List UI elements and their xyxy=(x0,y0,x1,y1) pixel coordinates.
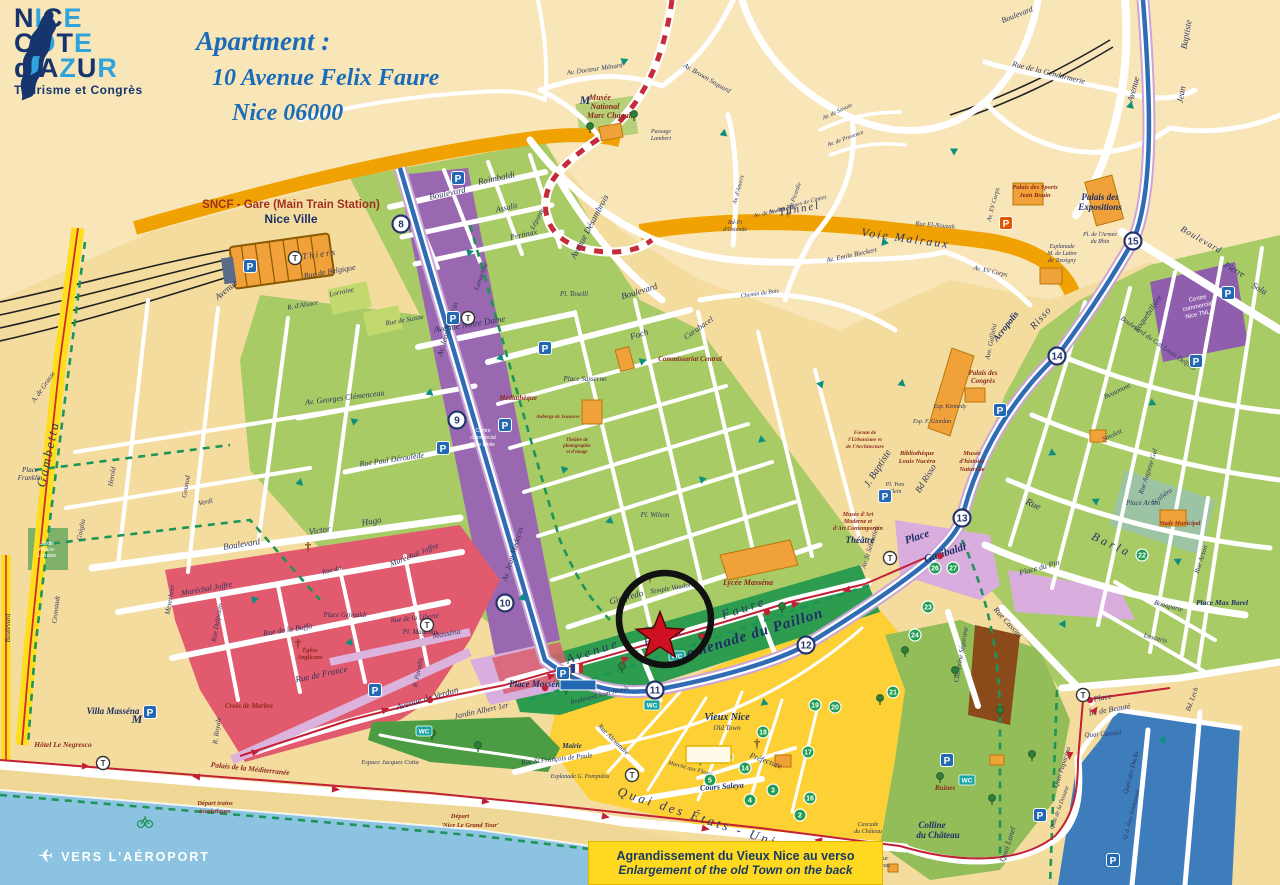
map-label: de l'Architecture xyxy=(846,444,885,450)
patrimoine-box xyxy=(686,746,731,763)
taxi-stand-icon: T xyxy=(1077,689,1090,702)
map-label: Place xyxy=(21,466,38,474)
map-label: Hôtel Le Negresco xyxy=(33,740,92,749)
parking-icon[interactable]: P xyxy=(437,442,450,456)
map-label: 'Nice Le Grand Tour' xyxy=(441,822,499,829)
parking-icon[interactable]: P xyxy=(144,706,157,720)
map-label: Palais des xyxy=(1081,192,1119,202)
parking-icon[interactable]: P xyxy=(244,260,257,274)
parking-icon[interactable]: P xyxy=(1190,355,1203,369)
map-label: Esplanade xyxy=(1048,244,1075,250)
map-label: Commissariat Central xyxy=(658,355,722,363)
poi-marker-3[interactable]: 3 xyxy=(767,784,779,796)
parking-icon[interactable]: P xyxy=(994,404,1007,418)
svg-text:14: 14 xyxy=(1051,352,1063,363)
parking-relais-icon[interactable]: P xyxy=(1000,217,1013,231)
poi-marker-17[interactable]: 17 xyxy=(802,746,814,758)
svg-text:23: 23 xyxy=(924,605,932,612)
map-label: Musée xyxy=(962,450,981,457)
map-label: Auberge de Jeunesse xyxy=(535,415,580,420)
poi-marker-21[interactable]: 21 xyxy=(887,686,899,698)
station-subtitle: Nice Ville xyxy=(186,212,396,226)
map-label: d'histoire xyxy=(959,458,984,465)
svg-text:T: T xyxy=(293,254,298,263)
tram-stop-14[interactable]: 14 xyxy=(1049,348,1066,365)
tram-stop-10[interactable]: 10 xyxy=(497,595,514,612)
svg-text:P: P xyxy=(944,756,951,767)
parking-icon[interactable]: P xyxy=(1034,809,1047,823)
museum-icon: M xyxy=(131,712,143,726)
svg-text:T: T xyxy=(101,759,106,768)
svg-text:18: 18 xyxy=(759,730,767,737)
map-label: d'Ostende xyxy=(723,227,747,233)
poi-marker-23[interactable]: 23 xyxy=(922,601,934,613)
map-label: touristiques xyxy=(199,808,231,815)
parking-icon[interactable]: P xyxy=(452,172,465,186)
svg-text:P: P xyxy=(1225,289,1232,300)
map-label: Jean Bouin xyxy=(1018,192,1051,199)
map-label: Esp. F. Giordan xyxy=(912,419,951,425)
svg-text:10: 10 xyxy=(499,599,511,610)
apartment-line-3: Nice 06000 xyxy=(232,100,526,127)
map-label: Départ trains xyxy=(196,800,233,807)
map-label: Place Max Barel xyxy=(1196,598,1249,607)
map-label: Église xyxy=(301,646,318,654)
svg-text:9: 9 xyxy=(454,416,460,427)
svg-text:T: T xyxy=(425,621,430,630)
svg-text:P: P xyxy=(450,314,457,325)
taxi-stand-icon: T xyxy=(421,619,434,632)
map-label: d'Art Contemporain xyxy=(833,526,884,532)
taxi-stand-icon: T xyxy=(97,757,110,770)
parking-icon[interactable]: P xyxy=(557,667,570,681)
map-label: Ruines xyxy=(934,784,956,792)
map-label: Old Town xyxy=(713,724,741,732)
map-label: Départ xyxy=(450,813,470,820)
poi-marker-26[interactable]: 26 xyxy=(929,562,941,574)
poi-marker-4[interactable]: 4 xyxy=(744,794,756,806)
parking-icon[interactable]: P xyxy=(1107,854,1120,868)
map-label: Lorraine xyxy=(38,553,57,559)
wc-icon: WC xyxy=(644,700,660,710)
map-label: Colline xyxy=(918,820,945,830)
map-label: Palais des xyxy=(969,369,998,377)
map-label: Pl. Wilson xyxy=(640,511,670,519)
map-label: Pl. Toselli xyxy=(559,290,588,298)
svg-text:16: 16 xyxy=(806,796,814,803)
map-label: Médiathèque xyxy=(498,394,537,402)
map-label: Lambert xyxy=(650,136,672,142)
map-label: du Rhin xyxy=(1091,239,1110,245)
svg-text:P: P xyxy=(882,492,889,503)
taxi-stand-icon: T xyxy=(884,552,897,565)
svg-text:27: 27 xyxy=(949,566,957,573)
svg-text:P: P xyxy=(455,174,462,185)
svg-text:P: P xyxy=(560,669,567,680)
svg-text:5: 5 xyxy=(708,778,712,785)
svg-text:2: 2 xyxy=(798,813,802,820)
enlargement-line-en: Enlargement of the old Town on the back xyxy=(589,863,882,877)
map-label: du Château xyxy=(854,829,882,835)
poi-marker-27[interactable]: 27 xyxy=(947,562,959,574)
map-label: Forum de xyxy=(854,430,877,436)
svg-text:WC: WC xyxy=(962,778,973,785)
map-label: Centre xyxy=(475,428,490,434)
svg-text:T: T xyxy=(888,554,893,563)
map-label: Théâtre de xyxy=(566,438,589,443)
svg-text:11: 11 xyxy=(650,686,661,697)
enlargement-line-fr: Agrandissement du Vieux Nice au verso xyxy=(589,849,882,863)
svg-text:24: 24 xyxy=(911,633,919,640)
svg-text:21: 21 xyxy=(889,690,897,697)
svg-text:14: 14 xyxy=(741,766,749,773)
svg-text:WC: WC xyxy=(419,729,430,736)
svg-text:P: P xyxy=(247,262,254,273)
map-label: National xyxy=(590,102,621,111)
map-label: Expositions xyxy=(1077,202,1122,212)
map-label: M. de Lattre xyxy=(1046,251,1077,257)
tram-stop-12[interactable]: 12 xyxy=(798,637,815,654)
route-stop-dot xyxy=(764,609,770,615)
parking-icon[interactable]: P xyxy=(941,754,954,768)
airport-label: VERS L'AÉROPORT xyxy=(61,850,210,864)
map-label: Marc Chagall xyxy=(586,111,634,120)
taxi-stand-icon: T xyxy=(626,769,639,782)
map-label: Nice Étoile xyxy=(471,441,495,448)
poi-marker-2[interactable]: 2 xyxy=(794,809,806,821)
apartment-annotation: Apartment : 10 Avenue Felix Faure Nice 0… xyxy=(196,26,526,127)
nice-tourist-map: AvenueThiersRue de BelgiqueR. d'AlsaceLo… xyxy=(0,0,1280,885)
svg-text:15: 15 xyxy=(1127,237,1139,248)
map-label: Bibliothèque xyxy=(899,450,934,457)
parking-icon[interactable]: P xyxy=(499,419,512,433)
map-label: Boulevard xyxy=(4,613,12,642)
map-label: Vieux Nice xyxy=(704,712,750,723)
nice-cote-azur-logo: NICECÔTEd'AZUR Tourisme et Congrès xyxy=(14,6,204,97)
svg-text:4: 4 xyxy=(748,798,752,805)
tram-stop-13[interactable]: 13 xyxy=(954,510,971,527)
parking-icon[interactable]: P xyxy=(1222,287,1235,301)
map-label: Esplanade G. Pompidou xyxy=(550,774,610,780)
svg-text:T: T xyxy=(630,771,635,780)
map-label: Espace Jacques Cotta xyxy=(360,759,418,766)
map-label: Naturelle xyxy=(958,466,984,473)
svg-text:17: 17 xyxy=(804,750,812,757)
map-label: photographie xyxy=(562,444,591,449)
map-label: Pl. de l'Armée xyxy=(1082,232,1117,238)
map-label: Congrès xyxy=(971,377,995,385)
svg-text:20: 20 xyxy=(831,705,839,712)
parking-icon[interactable]: P xyxy=(369,684,382,698)
map-label: Théâtre xyxy=(846,535,875,545)
map-label: Musée d'Art xyxy=(842,512,874,518)
map-label: de Tassigny xyxy=(1048,258,1076,264)
parking-icon[interactable]: P xyxy=(539,342,552,356)
map-label: Moderne et xyxy=(843,519,872,525)
taxi-stand-icon: T xyxy=(462,312,475,325)
map-label: commercial xyxy=(470,435,496,441)
poi-marker-18[interactable]: 18 xyxy=(757,726,769,738)
tram-stop-11[interactable]: 11 xyxy=(647,682,664,699)
station-title: SNCF - Gare (Main Train Station) xyxy=(186,198,396,212)
airport-direction: ✈ VERS L'AÉROPORT xyxy=(38,846,210,867)
poi-marker-22[interactable]: 22 xyxy=(1136,549,1148,561)
svg-text:P: P xyxy=(147,708,154,719)
map-label: Rd-Pt xyxy=(727,220,742,226)
map-label: Cascade xyxy=(858,822,879,828)
map-label: Place Grimaldi xyxy=(322,611,366,619)
museum-icon: M xyxy=(579,93,591,107)
map-label: Franklin xyxy=(17,474,43,482)
wc-icon: WC xyxy=(416,726,432,736)
svg-text:P: P xyxy=(997,406,1004,417)
poi-marker-16[interactable]: 16 xyxy=(804,792,816,804)
route-stop-dot xyxy=(937,553,943,559)
parking-icon[interactable]: P xyxy=(879,490,892,504)
svg-text:P: P xyxy=(1003,219,1010,230)
svg-text:12: 12 xyxy=(800,641,812,652)
svg-text:P: P xyxy=(440,444,447,455)
route-stop-dot xyxy=(542,685,548,691)
apartment-line-2: 10 Avenue Felix Faure xyxy=(212,65,526,92)
wc-icon: WC xyxy=(959,775,975,785)
map-label: Pl. Yves xyxy=(885,482,905,488)
map-label: Place Masséna xyxy=(509,679,565,689)
svg-text:22: 22 xyxy=(1138,553,1146,560)
church-icon: † xyxy=(295,636,302,651)
church-icon: † xyxy=(754,736,761,751)
eagle-icon xyxy=(14,6,72,110)
poi-marker-24[interactable]: 24 xyxy=(909,629,921,641)
taxi-stand-icon: T xyxy=(289,252,302,265)
map-label: Louis Nucéra xyxy=(898,458,936,465)
svg-text:P: P xyxy=(1037,811,1044,822)
map-label: Stade Municipal xyxy=(1160,521,1201,527)
svg-text:13: 13 xyxy=(956,514,968,525)
svg-text:19: 19 xyxy=(811,703,819,710)
map-label: du Château xyxy=(916,830,959,840)
poi-marker-19[interactable]: 19 xyxy=(809,699,821,711)
svg-text:3: 3 xyxy=(771,788,775,795)
map-label: Mairie xyxy=(561,742,581,750)
apartment-line-1: Apartment : xyxy=(196,26,526,57)
tram-stop-9[interactable]: 9 xyxy=(449,412,466,429)
svg-text:P: P xyxy=(1110,856,1117,867)
map-canvas: AvenueThiersRue de BelgiqueR. d'AlsaceLo… xyxy=(0,0,1280,885)
parking-icon[interactable]: P xyxy=(447,312,460,326)
map-label: Musée xyxy=(588,93,611,102)
map-label: l'Urbanisme et xyxy=(848,437,882,443)
svg-text:P: P xyxy=(1193,357,1200,368)
svg-text:T: T xyxy=(466,314,471,323)
svg-text:P: P xyxy=(502,421,509,432)
svg-text:8: 8 xyxy=(398,220,404,231)
svg-text:WC: WC xyxy=(647,703,658,710)
map-label: Croix de Marbre xyxy=(225,702,273,710)
poi-marker-5[interactable]: 5 xyxy=(704,774,716,786)
svg-text:P: P xyxy=(542,344,549,355)
poi-marker-14[interactable]: 14 xyxy=(739,762,751,774)
map-label: Lycée Masséna xyxy=(722,578,773,587)
svg-text:P: P xyxy=(372,686,379,697)
route-stop-dot xyxy=(427,697,433,703)
tram-stop-15[interactable]: 15 xyxy=(1125,233,1142,250)
svg-text:T: T xyxy=(1081,691,1086,700)
map-label: Place Sasserno xyxy=(563,375,607,383)
svg-text:26: 26 xyxy=(931,566,939,573)
station-label: SNCF - Gare (Main Train Station) Nice Vi… xyxy=(186,198,396,226)
map-label: Passage xyxy=(650,129,671,135)
map-label: Esp. Kennedy xyxy=(933,404,967,410)
enlargement-note: Agrandissement du Vieux Nice au verso En… xyxy=(588,841,883,885)
map-label: Anglicane xyxy=(296,655,323,661)
plane-icon: ✈ xyxy=(38,846,53,867)
map-label: Palais des Sports xyxy=(1012,184,1058,191)
church-icon: † xyxy=(305,539,312,554)
poi-marker-20[interactable]: 20 xyxy=(829,701,841,713)
map-label: et d'image xyxy=(566,450,588,455)
